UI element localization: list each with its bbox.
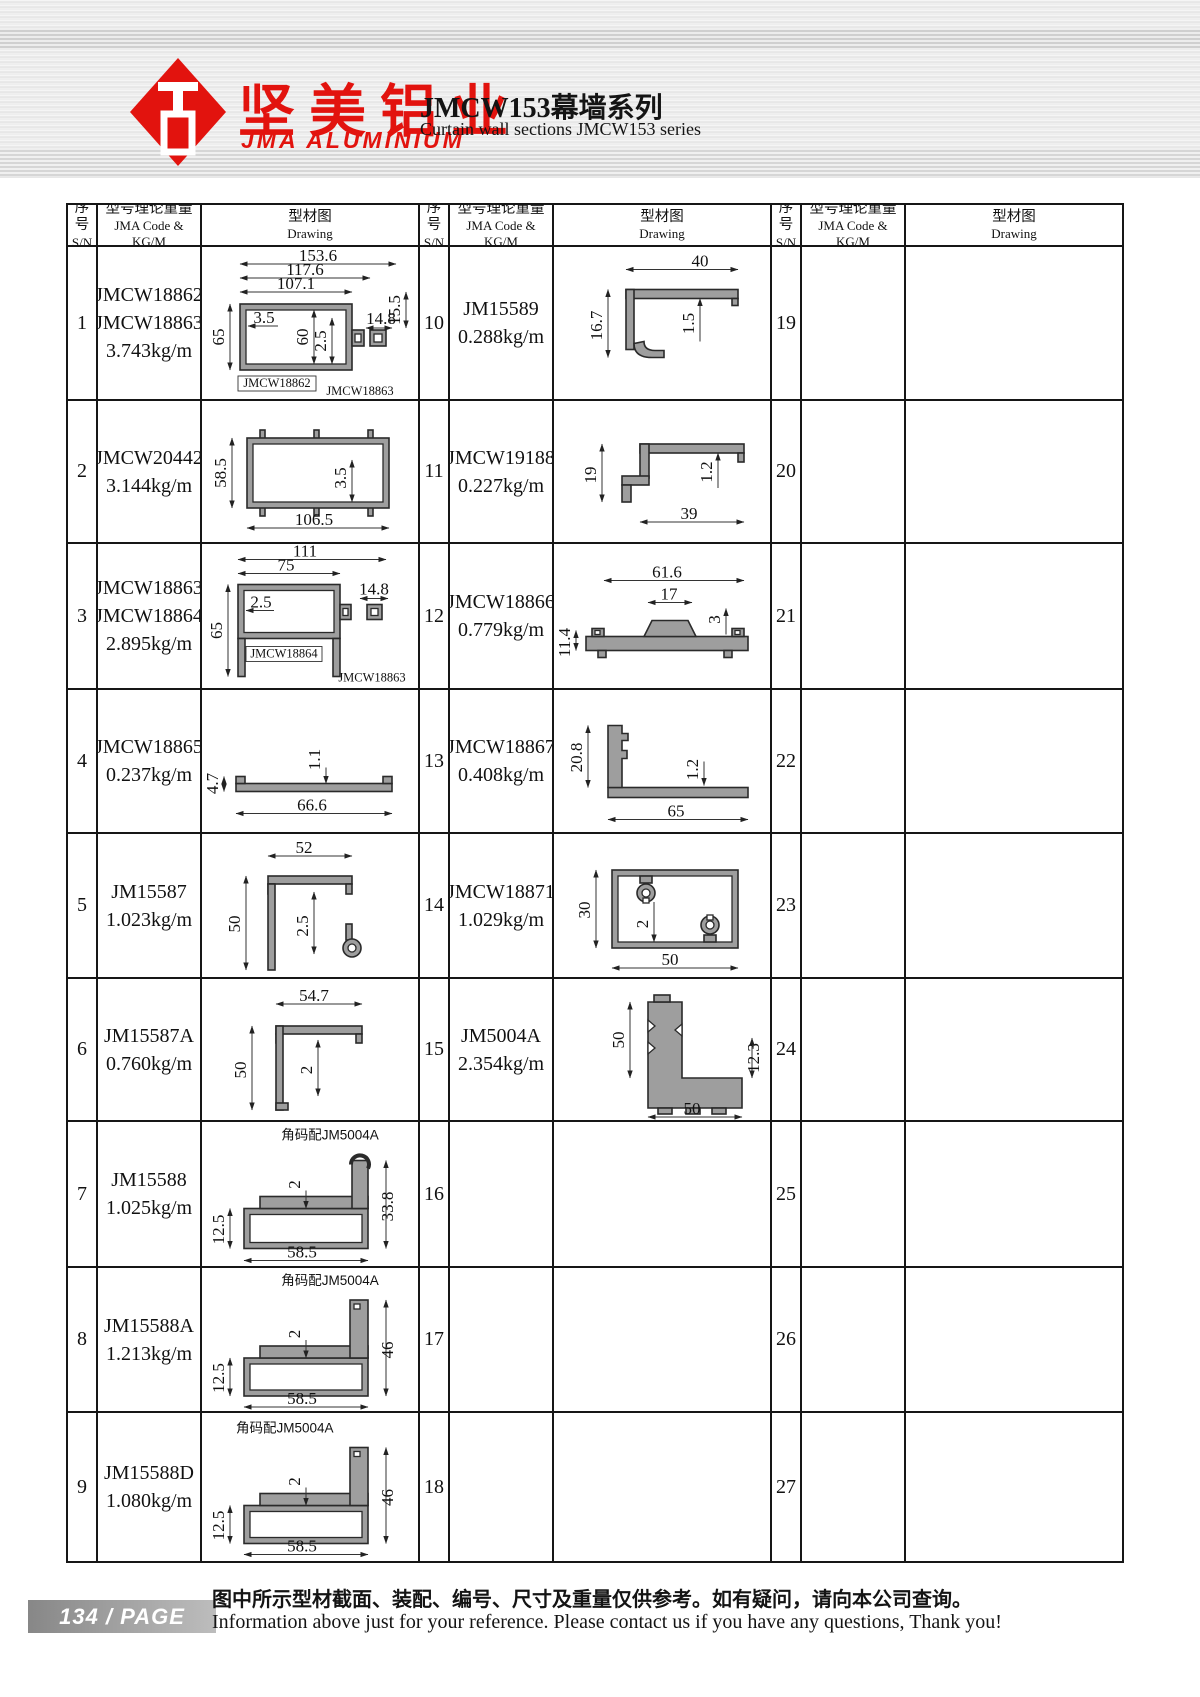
svg-text:65: 65: [668, 802, 685, 821]
sn-cell: 8: [68, 1268, 96, 1411]
sn-cell: 23: [772, 834, 800, 977]
sn-cell: 14: [420, 834, 448, 977]
drawing-cell-empty: [906, 1413, 1122, 1561]
code-cell-empty: [802, 247, 904, 399]
svg-text:50: 50: [225, 916, 244, 933]
code-cell-empty: [802, 1413, 904, 1561]
svg-text:4.7: 4.7: [203, 772, 222, 794]
profile-drawing-12: 61.6 17 3 11.4: [554, 544, 770, 688]
sn-cell: 27: [772, 1413, 800, 1561]
svg-text:角码配JM5004A: 角码配JM5004A: [236, 1421, 334, 1436]
svg-text:12.5: 12.5: [209, 1511, 228, 1541]
sn-cell: 20: [772, 401, 800, 542]
code-cell: JM15588A 1.213kg/m: [98, 1268, 200, 1411]
svg-text:2: 2: [297, 1066, 316, 1075]
code-cell: JM15588 1.025kg/m: [98, 1122, 200, 1266]
sn-cell: 26: [772, 1268, 800, 1411]
code-cell: JM5004A 2.354kg/m: [450, 979, 552, 1120]
profile-drawing-6: 54.7 50 2: [202, 979, 418, 1120]
sn-cell: 22: [772, 690, 800, 832]
col-header-code: 型号理论重量JMA Code & KG/M: [802, 205, 904, 245]
svg-text:58.5: 58.5: [287, 1389, 317, 1408]
sn-cell: 19: [772, 247, 800, 399]
code-cell: JMCW18871 1.029kg/m: [450, 834, 552, 977]
col-header-code: 型号理论重量JMA Code & KG/M: [98, 205, 200, 245]
svg-text:2: 2: [633, 920, 652, 929]
code-cell: JMCW20442 3.144kg/m: [98, 401, 200, 542]
svg-text:12.5: 12.5: [209, 1215, 228, 1245]
code-cell: JMCW18867 0.408kg/m: [450, 690, 552, 832]
svg-text:11.4: 11.4: [555, 627, 574, 657]
drawing-cell-empty: [554, 1122, 770, 1266]
sn-cell: 2: [68, 401, 96, 542]
svg-text:107.1: 107.1: [277, 274, 315, 293]
code-cell-empty: [802, 690, 904, 832]
svg-text:58.5: 58.5: [287, 1537, 317, 1556]
code-cell: JM15587A 0.760kg/m: [98, 979, 200, 1120]
profile-drawing-9: 角码配JM5004A 2 46 12.5 58.5: [202, 1413, 418, 1561]
sn-cell: 21: [772, 544, 800, 688]
svg-text:12.3: 12.3: [744, 1043, 763, 1073]
svg-text:2.5: 2.5: [293, 915, 312, 936]
col-header-drawing: 型材图Drawing: [906, 205, 1122, 245]
profiles-table: 序号S/N 型号理论重量JMA Code & KG/M 型材图Drawing 序…: [66, 203, 1124, 1563]
header-texture-stripe-top: [0, 30, 1200, 50]
svg-text:50: 50: [609, 1032, 628, 1049]
sn-cell: 13: [420, 690, 448, 832]
svg-text:1.5: 1.5: [679, 313, 698, 334]
code-cell: JMCW18862 JMCW18863 3.743kg/m: [98, 247, 200, 399]
svg-text:15.5: 15.5: [385, 295, 404, 325]
svg-text:角码配JM5004A: 角码配JM5004A: [281, 1128, 379, 1143]
profile-drawing-14: 30 2 50: [554, 834, 770, 977]
drawing-cell-empty: [906, 834, 1122, 977]
footer-note-chinese: 图中所示型材截面、装配、编号、尺寸及重量仅供参考。如有疑问，请向本公司查询。: [212, 1583, 972, 1612]
svg-text:106.5: 106.5: [295, 510, 333, 529]
svg-text:66.6: 66.6: [297, 796, 327, 815]
page-subtitle: Curtain wall sections JMCW153 series: [420, 119, 701, 140]
code-cell: JMCW18865 0.237kg/m: [98, 690, 200, 832]
sn-cell: 10: [420, 247, 448, 399]
sn-cell: 16: [420, 1122, 448, 1266]
sn-cell: 7: [68, 1122, 96, 1266]
profile-drawing-3: 111 75 2.5 65 14.8 JMCW18864 JMCW18863: [202, 544, 418, 688]
profile-drawing-8: 角码配JM5004A 2 46 12.5 58.5: [202, 1268, 418, 1411]
col-header-sn: 序号S/N: [772, 205, 800, 245]
sn-cell: 3: [68, 544, 96, 688]
sn-cell: 11: [420, 401, 448, 542]
svg-text:33.8: 33.8: [378, 1192, 397, 1222]
svg-text:3.5: 3.5: [253, 308, 274, 327]
svg-text:3: 3: [705, 615, 724, 624]
sn-cell: 5: [68, 834, 96, 977]
svg-text:14.8: 14.8: [359, 580, 389, 599]
svg-text:16.7: 16.7: [587, 310, 606, 340]
svg-text:2: 2: [285, 1477, 304, 1486]
svg-text:12.5: 12.5: [209, 1363, 228, 1393]
svg-text:50: 50: [231, 1062, 250, 1079]
code-cell: JM15588D 1.080kg/m: [98, 1413, 200, 1561]
svg-text:30: 30: [575, 902, 594, 919]
profile-drawing-13: 20.8 1.2 65: [554, 690, 770, 832]
svg-text:20.8: 20.8: [567, 743, 586, 773]
code-cell: JM15589 0.288kg/m: [450, 247, 552, 399]
svg-text:2: 2: [285, 1180, 304, 1189]
code-cell-empty: [802, 401, 904, 542]
sn-cell: 9: [68, 1413, 96, 1561]
svg-text:39: 39: [681, 504, 698, 523]
drawing-cell-empty: [554, 1413, 770, 1561]
drawing-cell-empty: [906, 1268, 1122, 1411]
svg-text:19: 19: [581, 467, 600, 484]
profile-drawing-1: 153.6 117.6 107.1 3.5 65 60 2.5 14.8 15.…: [202, 247, 418, 399]
svg-text:JMCW18862: JMCW18862: [243, 376, 310, 390]
svg-text:50: 50: [684, 1099, 701, 1118]
drawing-cell-empty: [906, 401, 1122, 542]
code-cell-empty: [450, 1268, 552, 1411]
col-header-code: 型号理论重量JMA Code & KG/M: [450, 205, 552, 245]
svg-text:58.5: 58.5: [211, 458, 230, 488]
svg-text:角码配JM5004A: 角码配JM5004A: [281, 1273, 379, 1288]
sn-cell: 24: [772, 979, 800, 1120]
sn-cell: 12: [420, 544, 448, 688]
svg-text:JMCW18863: JMCW18863: [326, 384, 393, 398]
code-cell: JMCW19188 0.227kg/m: [450, 401, 552, 542]
code-cell: JM15587 1.023kg/m: [98, 834, 200, 977]
svg-text:65: 65: [207, 622, 226, 639]
drawing-cell-empty: [906, 979, 1122, 1120]
code-cell-empty: [802, 834, 904, 977]
svg-text:2: 2: [285, 1330, 304, 1339]
col-header-drawing: 型材图Drawing: [202, 205, 418, 245]
sn-cell: 18: [420, 1413, 448, 1561]
drawing-cell-empty: [906, 1122, 1122, 1266]
svg-text:JMCW18864: JMCW18864: [250, 647, 318, 661]
sn-cell: 6: [68, 979, 96, 1120]
code-cell-empty: [802, 544, 904, 688]
svg-text:46: 46: [378, 1342, 397, 1359]
svg-text:50: 50: [662, 950, 679, 969]
svg-text:46: 46: [378, 1489, 397, 1506]
svg-text:61.6: 61.6: [652, 563, 682, 582]
drawing-cell-empty: [554, 1268, 770, 1411]
drawing-cell-empty: [906, 690, 1122, 832]
sn-cell: 1: [68, 247, 96, 399]
profile-drawing-4: 4.7 1.1 66.6: [202, 690, 418, 832]
sn-cell: 4: [68, 690, 96, 832]
svg-text:75: 75: [278, 556, 295, 575]
profile-drawing-10: 40 16.7 1.5: [554, 247, 770, 399]
drawing-cell-empty: [906, 247, 1122, 399]
svg-text:2.5: 2.5: [311, 330, 330, 351]
svg-text:3.5: 3.5: [331, 467, 350, 488]
code-cell: JMCW18863 JMCW18864 2.895kg/m: [98, 544, 200, 688]
svg-text:58.5: 58.5: [287, 1243, 317, 1262]
svg-text:54.7: 54.7: [299, 986, 329, 1005]
page-number-badge: 134 / PAGE: [28, 1600, 216, 1633]
col-header-sn: 序号S/N: [420, 205, 448, 245]
footer-note-english: Information above just for your referenc…: [212, 1611, 1002, 1634]
code-cell-empty: [802, 1268, 904, 1411]
svg-text:60: 60: [293, 329, 312, 346]
code-cell: JMCW18866 0.779kg/m: [450, 544, 552, 688]
profile-drawing-15: 50 12.3 50: [554, 979, 770, 1120]
svg-text:JMCW18863: JMCW18863: [338, 671, 405, 685]
code-cell-empty: [450, 1122, 552, 1266]
drawing-cell-empty: [906, 544, 1122, 688]
col-header-sn: 序号S/N: [68, 205, 96, 245]
svg-text:52: 52: [296, 838, 313, 857]
svg-text:65: 65: [209, 329, 228, 346]
code-cell-empty: [802, 1122, 904, 1266]
svg-text:40: 40: [692, 252, 709, 271]
sn-cell: 17: [420, 1268, 448, 1411]
svg-text:2.5: 2.5: [250, 593, 271, 612]
profile-drawing-5: 52 50 2.5: [202, 834, 418, 977]
profile-drawing-7: 角码配JM5004A 2 33.8 12.5 58.5: [202, 1122, 418, 1266]
sn-cell: 15: [420, 979, 448, 1120]
col-header-drawing: 型材图Drawing: [554, 205, 770, 245]
code-cell-empty: [450, 1413, 552, 1561]
sn-cell: 25: [772, 1122, 800, 1266]
svg-text:17: 17: [661, 585, 679, 604]
svg-text:1.1: 1.1: [305, 749, 324, 770]
profile-drawing-2: 58.5 3.5 106.5: [202, 401, 418, 542]
svg-text:111: 111: [293, 544, 317, 561]
profile-drawing-11: 19 1.2 39: [554, 401, 770, 542]
jma-logo-icon: [128, 56, 228, 173]
svg-text:1.2: 1.2: [683, 759, 702, 780]
code-cell-empty: [802, 979, 904, 1120]
svg-text:1.2: 1.2: [697, 461, 716, 482]
